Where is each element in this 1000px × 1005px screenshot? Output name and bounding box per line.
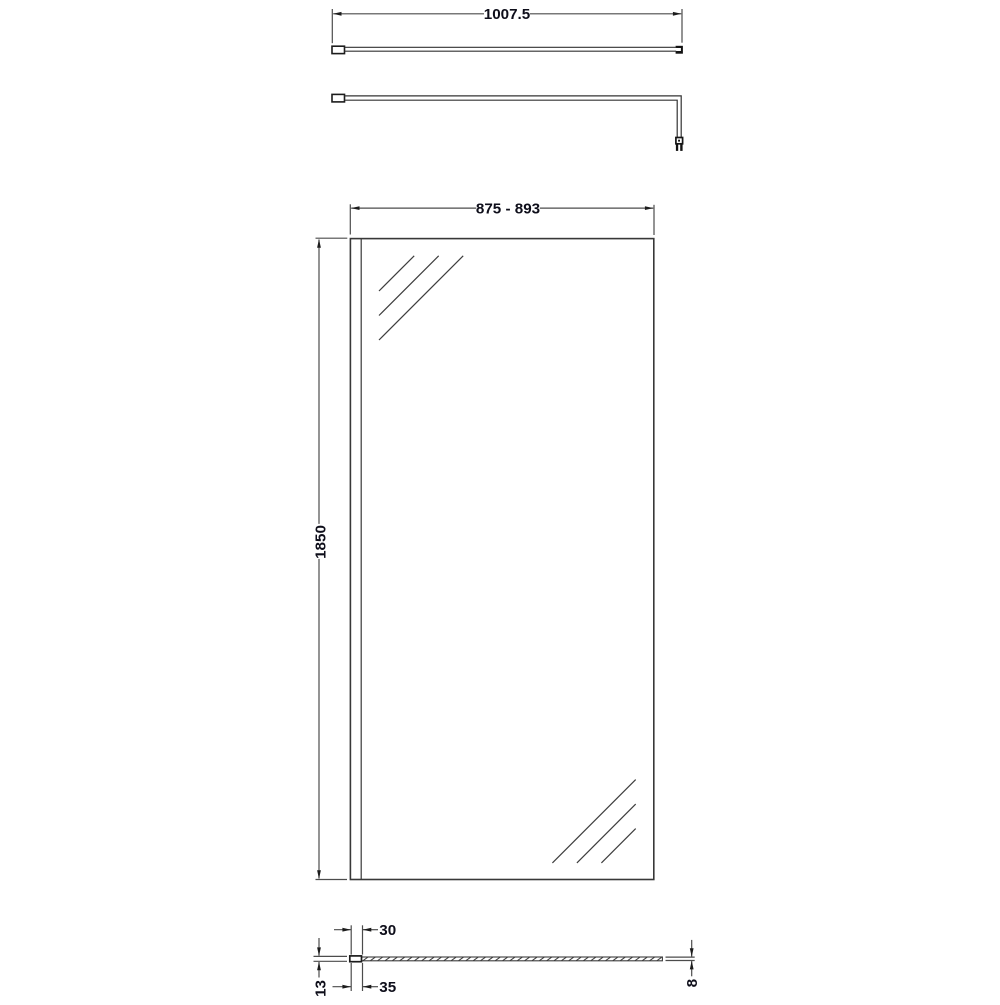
svg-text:35: 35 [379, 979, 396, 996]
svg-text:875 - 893: 875 - 893 [476, 201, 540, 218]
svg-text:13: 13 [312, 980, 329, 997]
svg-text:30: 30 [379, 922, 396, 939]
svg-text:1007.5: 1007.5 [484, 6, 531, 23]
svg-text:8: 8 [684, 979, 701, 987]
svg-text:1850: 1850 [312, 525, 329, 559]
